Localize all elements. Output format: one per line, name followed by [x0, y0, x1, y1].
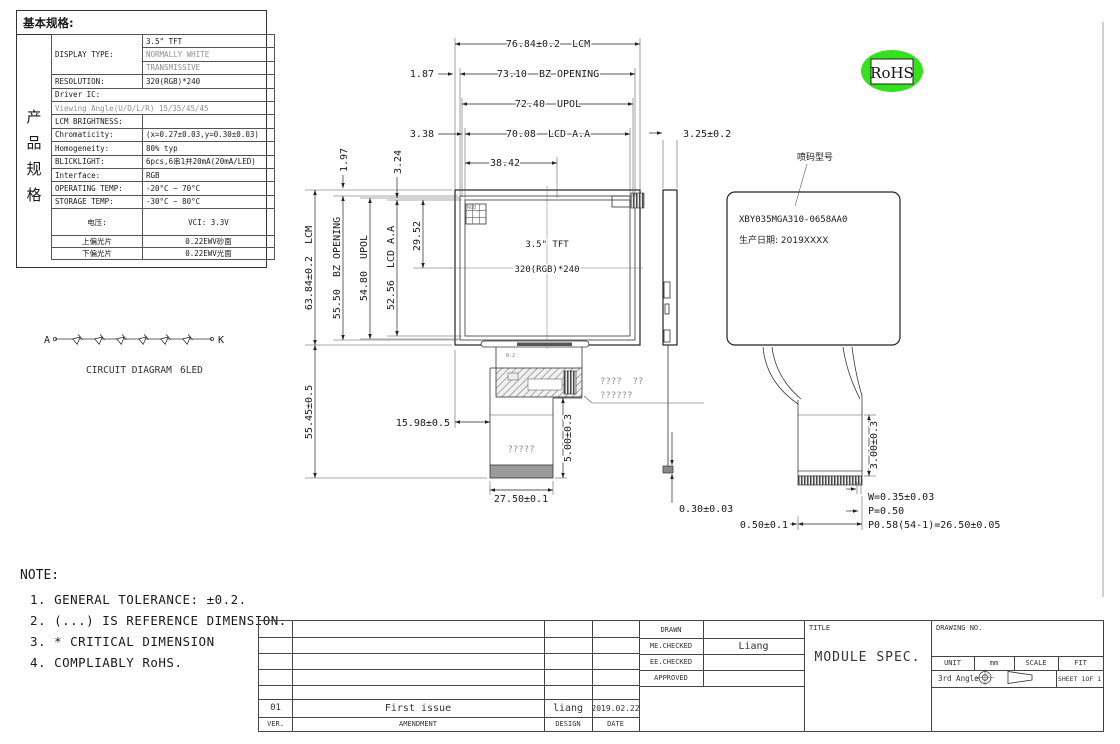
spec-cell: RGB: [143, 168, 275, 181]
dim-aa-width: 70.08 LCD A.A: [506, 129, 590, 140]
spec-row: RESOLUTION:320(RGB)*240: [52, 75, 275, 88]
title-block-divider: [259, 685, 639, 686]
note-item: 1. GENERAL TOLERANCE: ±0.2.: [30, 589, 287, 610]
spec-row: Chromaticity:(x=0.27±0.03,y=0.30±0.03): [52, 128, 275, 141]
title-block-divider: [1058, 656, 1059, 670]
bonding-strip: [517, 343, 572, 347]
spec-cell: (x=0.27±0.03,y=0.30±0.03): [143, 128, 275, 141]
dim-tail-width: 27.50±0.1: [494, 494, 548, 505]
spec-table: 基本规格: DISPLAY TYPE:3.5" TFTNORMALLY WHIT…: [16, 10, 267, 268]
drawn-label: DRAWN: [639, 621, 703, 638]
spec-cell: RESOLUTION:: [52, 75, 143, 88]
dim-side-tip: 0.30±0.03: [679, 504, 733, 515]
ledge-detail: [612, 196, 630, 207]
title-block-divider: [259, 717, 639, 718]
circuit-cathode-label: K: [218, 335, 224, 346]
checked-by-value: Liang: [703, 638, 804, 654]
dim-bz-height: 55.50 BZ OPENING: [332, 217, 343, 319]
circuit-anode-label: A: [44, 335, 50, 346]
dim-bz-height-offset: 1.97: [339, 148, 350, 172]
stiffener: [490, 465, 553, 478]
fpc-tail-text: ?????: [507, 445, 534, 455]
sheet-cell: SHEET 1OF 1: [1056, 670, 1103, 687]
note-item: 4. COMPLIABLY RoHS.: [30, 652, 287, 673]
spec-side-char: 格: [17, 184, 51, 205]
fpc-note-line1: ???? ??: [600, 377, 643, 387]
bonding-mark: 0.2: [506, 353, 515, 359]
spray-code-callout: 喷码型号: [797, 152, 833, 163]
spec-side-char: 规: [17, 158, 51, 179]
dim-bz-width: 73.10 BZ OPENING: [497, 69, 599, 80]
title-block: DRAWN ME.CHECKED EE.CHECKED APPROVED Lia…: [258, 620, 1104, 732]
note-item: 2. (...) IS REFERENCE DIMENSION.: [30, 610, 287, 631]
spec-cell: Interface:: [52, 168, 143, 181]
spec-row: 电压:VCI: 3.3V: [52, 209, 275, 236]
production-date: 生产日期: 2019XXXX: [739, 234, 828, 246]
title-block-divider: [259, 669, 639, 670]
title-block-divider: [1056, 670, 1057, 687]
spec-cell: OPERATING TEMP:: [52, 182, 143, 195]
spec-cell: Chromaticity:: [52, 128, 143, 141]
spec-side-char: 产: [17, 106, 51, 127]
scale-label: SCALE: [1014, 656, 1058, 670]
spec-cell: 0.22EWV光面: [143, 248, 275, 260]
dim-tail-x: 15.98±0.5: [396, 418, 450, 429]
panel-resolution-label: 320(RGB)*240: [514, 265, 579, 275]
dim-bz-width-offset: 1.87: [410, 69, 434, 80]
rev-version: 01: [259, 699, 292, 717]
dim-pin-total: P0.58(54-1)=26.50±0.05: [868, 520, 1000, 531]
title-block-divider: [931, 670, 1103, 671]
spec-cell: DISPLAY TYPE:: [52, 35, 143, 75]
dim-side-thickness: 3.25±0.2: [683, 129, 731, 140]
title-block-divider: [639, 654, 804, 655]
spec-cell: VCI: 3.3V: [143, 209, 275, 236]
spec-row: OPERATING TEMP:-20°C ~ 70°C: [52, 182, 275, 195]
front-view: RGB 0.2 3.5" TFT 320(RGB)*240: [450, 186, 644, 359]
sheet-title: MODULE SPEC.: [804, 647, 931, 667]
spec-cell: 320(RGB)*240: [143, 75, 275, 88]
spec-cell: TRANSMISSIVE: [143, 61, 275, 74]
ver-label: VER.: [259, 717, 292, 731]
spec-cell: 下偏光片: [52, 248, 143, 260]
title-block-divider: [804, 621, 805, 731]
note-item: 3. * CRITICAL DIMENSION: [30, 631, 287, 652]
spec-row: Homogeneity:80% typ: [52, 142, 275, 155]
dim-aa-height-offset: 3.24: [393, 150, 404, 174]
circuit-diagram: A K CIRCUIT DIAGRAM 6LED: [44, 334, 224, 376]
circuit-caption: CIRCUIT DIAGRAM: [86, 365, 172, 376]
spec-cell: Viewing Angle(U/D/L/R) 15/35/45/45: [52, 101, 275, 114]
fpc-connector-detail: [564, 371, 576, 394]
pixel-grid-label: RGB: [467, 205, 476, 211]
unit-label: UNIT: [931, 656, 974, 670]
spec-cell: LCM BRIGHTNESS:: [52, 115, 143, 128]
dim-half-width: 38.42: [490, 158, 520, 169]
unit-value: mm: [974, 656, 1014, 670]
dim-upol-width: 72.40 UPOL: [515, 99, 581, 110]
spec-cell: 上偏光片: [52, 236, 143, 248]
title-block-divider: [931, 621, 932, 731]
sheet-value: 1OF 1: [1082, 675, 1102, 683]
rohs-label: RoHS: [870, 64, 914, 82]
title-block-divider: [639, 686, 804, 687]
projection-angle-label: 3rd Angle: [933, 670, 996, 687]
spec-cell: Homogeneity:: [52, 142, 143, 155]
notes-heading: NOTE:: [20, 568, 287, 583]
dim-upol-height: 54.80 UPOL: [359, 235, 370, 301]
dim-aa-width-offset: 3.38: [410, 129, 434, 140]
dim-pin-pitch: P=0.50: [868, 506, 904, 517]
title-label: TITLE: [804, 623, 869, 633]
spec-row: 下偏光片0.22EWV光面: [52, 248, 275, 260]
spec-cell: [143, 115, 275, 128]
drawing-no-label: DRAWING NO.: [931, 623, 1036, 633]
dim-half-height: 29.52: [412, 221, 423, 251]
spec-row: 上偏光片0.22EWV砂面: [52, 236, 275, 248]
spec-cell: -30°C ~ 80°C: [143, 195, 275, 208]
rev-date: 2019.02.22: [592, 699, 639, 717]
dim-lcm-width: 76.84±0.2 LCM: [506, 39, 590, 50]
pixel-grid-detail: RGB: [466, 204, 486, 224]
date-label: DATE: [592, 717, 639, 731]
spec-row: Interface:RGB: [52, 168, 275, 181]
spec-cell: 0.22EWV砂面: [143, 236, 275, 248]
spec-cell: 电压:: [52, 209, 143, 236]
title-block-divider: [1014, 656, 1015, 670]
spec-cell: 3.5" TFT: [143, 35, 275, 48]
title-block-divider: [259, 637, 639, 638]
dim-pin-margin: 0.50±0.1: [740, 520, 788, 531]
spec-cell: 6pcs,6串1并20mA(20mA/LED): [143, 155, 275, 168]
dim-connector-height: 3.00±0.3: [869, 421, 880, 469]
amendment-label: AMENDMENT: [292, 717, 544, 731]
approved-label: APPROVED: [639, 670, 703, 686]
spec-row: LCM BRIGHTNESS:: [52, 115, 275, 128]
rev-design: liang: [544, 699, 592, 717]
engineering-drawing-sheet: NO.PIN NAME1LED-2LED-3LED+4LED+5NC(YU)6N…: [0, 0, 1120, 744]
dim-pin-width: W=0.35±0.03: [868, 492, 934, 503]
ee-checked-label: EE.CHECKED: [639, 654, 703, 670]
spec-side-char: 品: [17, 132, 51, 153]
connector-pins: [798, 476, 862, 485]
title-block-divider: [639, 638, 804, 639]
title-block-divider: [259, 653, 639, 654]
circuit-caption-suffix: 6LED: [180, 365, 203, 376]
dim-lcm-height: 63.84±0.2 LCM: [304, 226, 315, 310]
dim-aa-height: 52.56 LCD A.A: [386, 226, 397, 310]
spec-row: Viewing Angle(U/D/L/R) 15/35/45/45: [52, 101, 275, 114]
spec-title: 基本规格:: [23, 15, 74, 31]
scale-value: FIT: [1058, 656, 1103, 670]
spec-cell: BLICKLIGHT:: [52, 155, 143, 168]
me-checked-label: ME.CHECKED: [639, 638, 703, 654]
spec-cell: STORAGE TEMP:: [52, 195, 143, 208]
side-view: [663, 190, 677, 473]
model-number: XBY035MGA310-0658AA0: [739, 215, 847, 225]
spec-row: Driver IC:: [52, 88, 275, 101]
dim-tail-segment: 5.00±0.3: [563, 414, 574, 462]
spec-cell: 80% typ: [143, 142, 275, 155]
title-block-divider: [931, 656, 1103, 657]
spec-cell: NORMALLY WHITE: [143, 48, 275, 61]
dim-tail-height: 55.45±0.5: [304, 385, 315, 439]
spec-row: STORAGE TEMP:-30°C ~ 80°C: [52, 195, 275, 208]
spec-cell: -20°C ~ 70°C: [143, 182, 275, 195]
spec-row: BLICKLIGHT:6pcs,6串1并20mA(20mA/LED): [52, 155, 275, 168]
sheet-label: SHEET: [1058, 675, 1078, 683]
spec-row: DISPLAY TYPE:3.5" TFT: [52, 35, 275, 48]
rev-amendment: First issue: [292, 699, 544, 717]
panel-size-label: 3.5" TFT: [525, 240, 569, 250]
notes: NOTE: 1. GENERAL TOLERANCE: ±0.2. 2. (..…: [20, 568, 287, 673]
fpc-note-line2: ??????: [600, 391, 633, 401]
title-block-divider: [931, 687, 1103, 688]
rohs-logo: RoHS: [861, 50, 923, 92]
title-block-divider: [639, 670, 804, 671]
title-block-divider: [974, 656, 975, 670]
design-label: DESIGN: [544, 717, 592, 731]
title-block-divider: [259, 699, 639, 700]
spec-cell: Driver IC:: [52, 88, 275, 101]
